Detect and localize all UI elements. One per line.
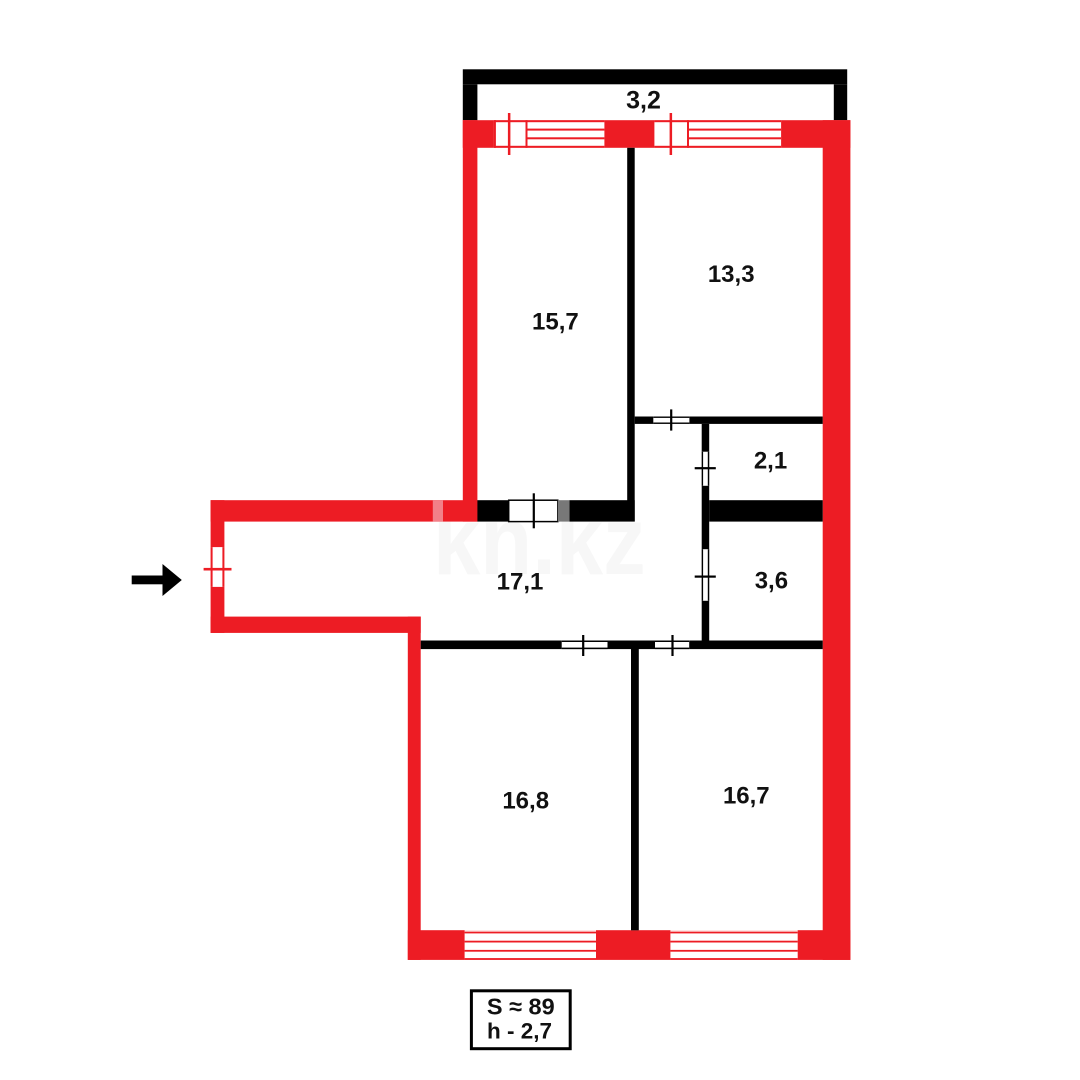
svg-text:2,1: 2,1 bbox=[754, 448, 787, 475]
svg-text:3,6: 3,6 bbox=[755, 567, 788, 594]
svg-text:16,8: 16,8 bbox=[502, 788, 549, 815]
svg-text:13,3: 13,3 bbox=[708, 261, 755, 288]
svg-text:S ≈ 89: S ≈ 89 bbox=[487, 993, 555, 1019]
svg-text:16,7: 16,7 bbox=[723, 783, 770, 810]
svg-text:17,1: 17,1 bbox=[497, 569, 544, 596]
svg-text:3,2: 3,2 bbox=[626, 86, 661, 114]
svg-text:15,7: 15,7 bbox=[532, 308, 579, 335]
svg-text:h - 2,7: h - 2,7 bbox=[487, 1019, 552, 1044]
